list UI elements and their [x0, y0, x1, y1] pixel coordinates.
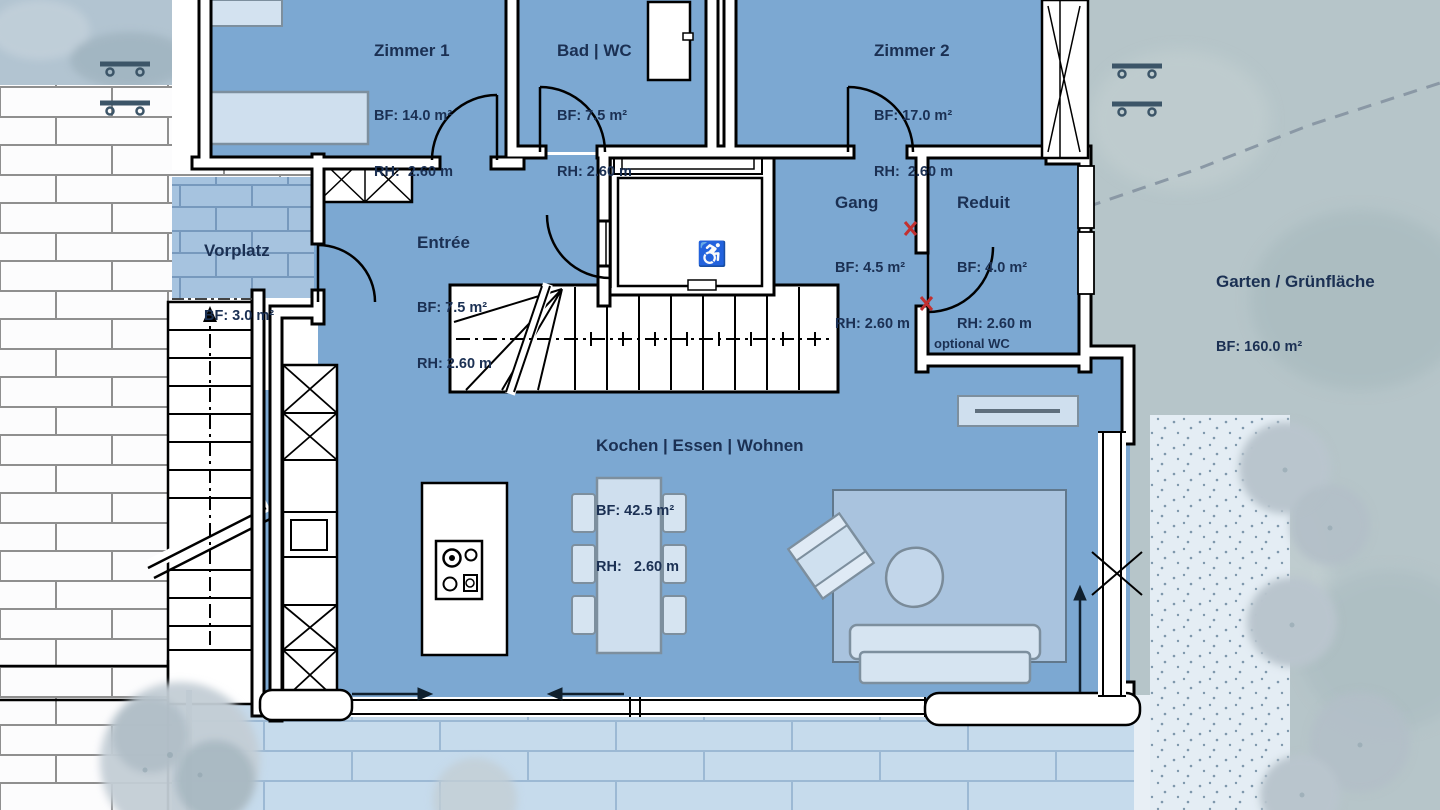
wall-corner-south-left [260, 690, 352, 720]
room-bf: BF: 3.0 m² [204, 309, 274, 325]
sideboard [958, 396, 1078, 426]
chair [572, 494, 595, 532]
room-name: Vorplatz [204, 242, 274, 261]
room-label-bad-wc: Bad | WC BF: 7.5 m² RH: 2.60 m [557, 7, 632, 216]
room-label-gang: Gang BF: 4.5 m² RH: 2.60 m [835, 159, 910, 368]
room-bf: BF: 4.5 m² [835, 261, 910, 277]
reduit-window [1078, 166, 1094, 228]
room-rh: RH: 2.60 m [374, 165, 453, 181]
room-bf: BF: 7.5 m² [417, 301, 492, 317]
room-rh: RH: 2.60 m [557, 165, 632, 181]
room-name: Gang [835, 194, 910, 213]
bath-cabinet [648, 2, 690, 80]
room-name: Zimmer 2 [874, 42, 953, 61]
room-bf: BF: 14.0 m² [374, 109, 453, 125]
room-label-vorplatz: Vorplatz BF: 3.0 m² [204, 207, 274, 360]
bed [208, 92, 368, 144]
room-rh: RH: 2.60 m [957, 317, 1032, 333]
room-bf: BF: 42.5 m² [596, 504, 804, 520]
room-name: Bad | WC [557, 42, 632, 61]
room-name: Garten / Grünfläche [1216, 273, 1375, 292]
chair [572, 545, 595, 583]
room-bf: BF: 4.0 m² [957, 261, 1032, 277]
room-label-entree: Entrée BF: 7.5 m² RH: 2.60 m [417, 199, 492, 408]
room-label-garten: Garten / Grünfläche BF: 160.0 m² [1216, 238, 1375, 391]
room-bf: BF: 160.0 m² [1216, 340, 1375, 356]
room-name: Zimmer 1 [374, 42, 453, 61]
coffee-table [886, 548, 943, 607]
sliding-door-south [345, 697, 925, 717]
optional-wc-label: optional WC [934, 336, 1010, 351]
staircase [450, 284, 838, 394]
room-label-kochen-essen-wohnen: Kochen | Essen | Wohnen BF: 42.5 m² RH: … [596, 402, 804, 611]
sofa [850, 625, 1040, 683]
wheelchair-icon: ♿ [697, 240, 727, 268]
kitchen-tall-cabinets [283, 365, 337, 700]
room-label-zimmer1: Zimmer 1 BF: 14.0 m² RH: 2.60 m [374, 7, 453, 216]
nightstand [208, 0, 282, 26]
window-bay-zimmer2 [1042, 0, 1088, 158]
kitchen-island [422, 483, 507, 655]
room-rh: RH: 2.60 m [835, 317, 910, 333]
room-name: Reduit [957, 194, 1032, 213]
room-bf: BF: 7.5 m² [557, 109, 632, 125]
room-bf: BF: 17.0 m² [874, 109, 953, 125]
room-name: Kochen | Essen | Wohnen [596, 437, 804, 456]
wall-corner-south-right [925, 693, 1140, 725]
chair [572, 596, 595, 634]
room-rh: RH: 2.60 m [417, 357, 492, 373]
room-rh: RH: 2.60 m [596, 560, 804, 576]
room-name: Entrée [417, 234, 492, 253]
reduit-window [1078, 232, 1094, 294]
floorplan-page: ♿ [0, 0, 1440, 810]
